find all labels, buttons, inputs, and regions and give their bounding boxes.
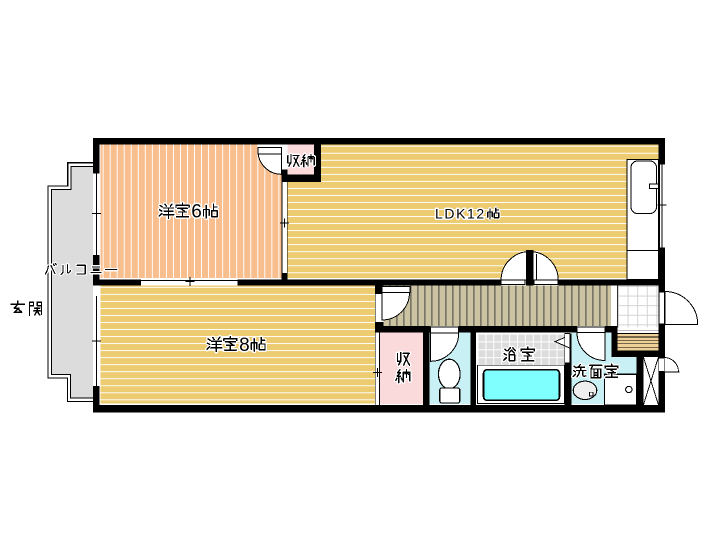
svg-text:8: 8 (239, 335, 250, 356)
svg-text:LDK12: LDK12 (435, 205, 486, 221)
svg-text:6: 6 (191, 202, 202, 223)
